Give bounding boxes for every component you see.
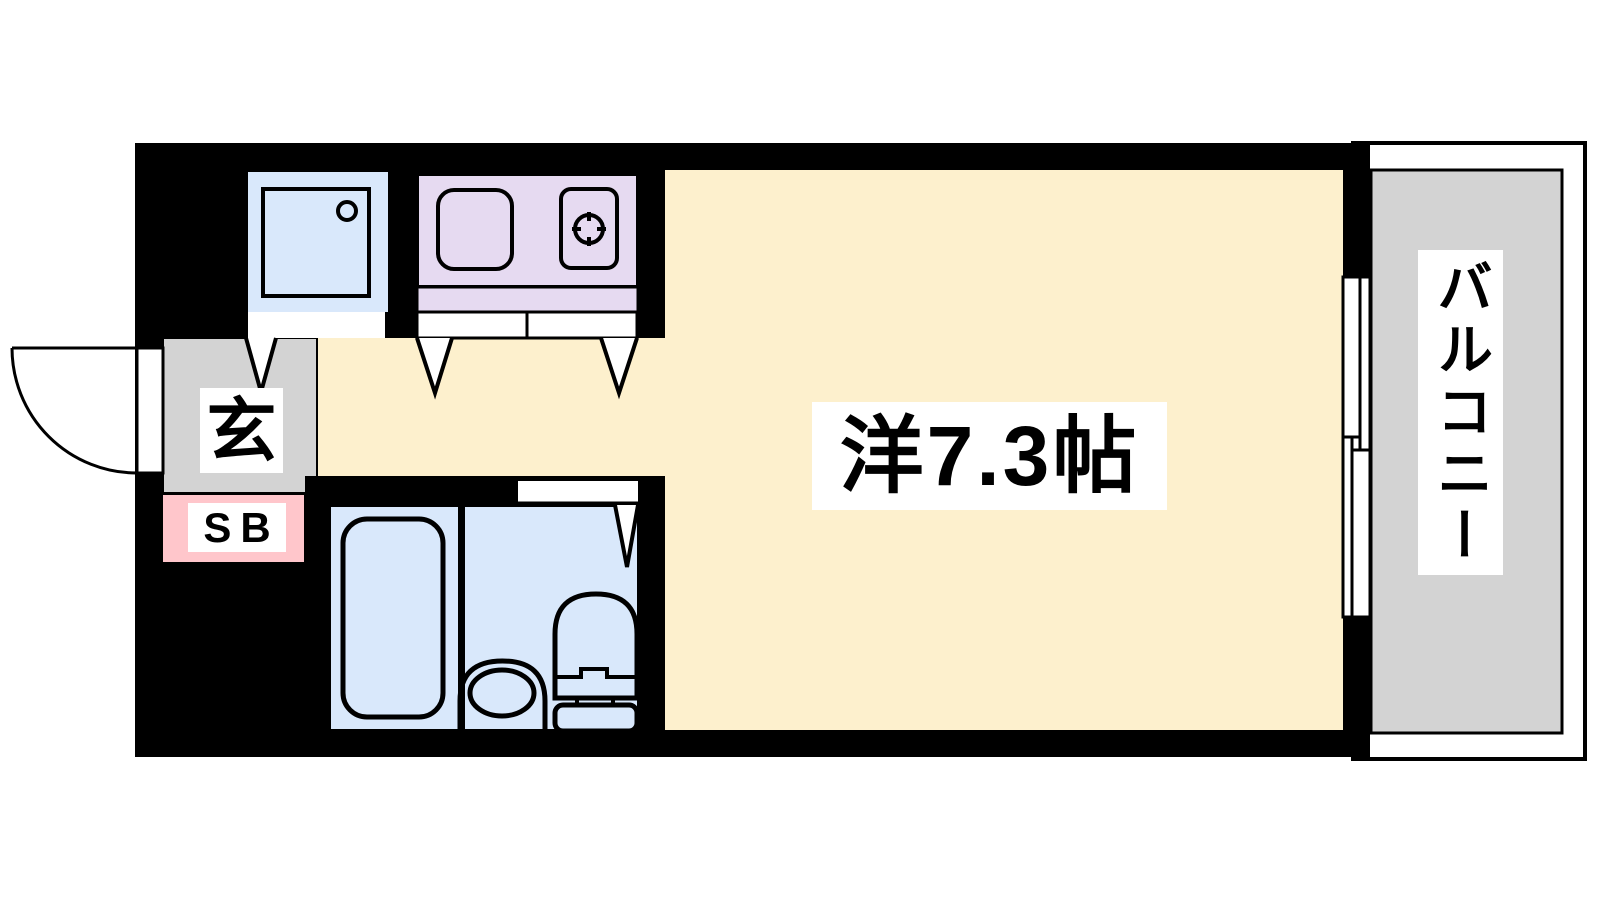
washer-pan-icon bbox=[248, 172, 388, 338]
balcony-label: バルコニー bbox=[1418, 250, 1503, 575]
entrance-label: 玄 bbox=[200, 388, 283, 473]
floorplan-page: 玄 SB 洋7.3帖 バルコニー bbox=[0, 0, 1600, 900]
sliding-window-icon bbox=[1343, 143, 1370, 757]
main-room-label: 洋7.3帖 bbox=[812, 402, 1167, 510]
entry-door-swing-icon bbox=[12, 348, 163, 473]
shoe-box-label: SB bbox=[188, 503, 286, 552]
bathroom-block bbox=[305, 476, 665, 745]
kitchen-counter bbox=[417, 174, 638, 338]
